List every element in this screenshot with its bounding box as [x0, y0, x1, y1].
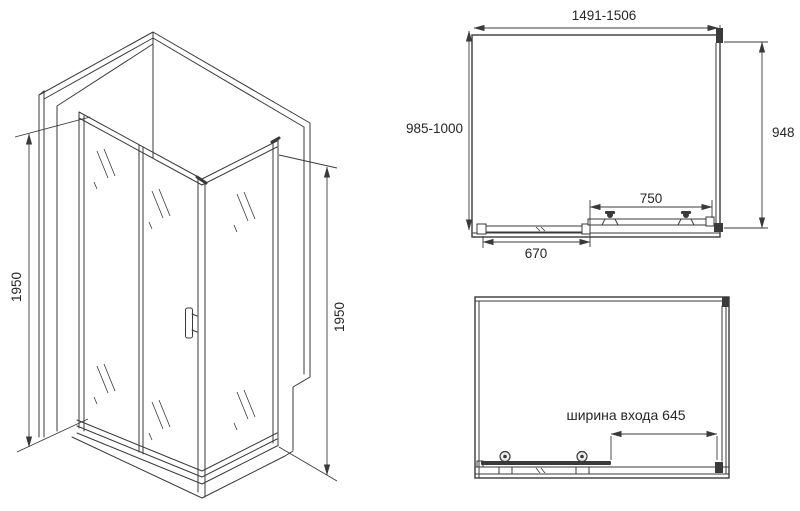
roller-icon	[577, 452, 587, 462]
shower-enclosure-technical-drawing: 1950 1950	[0, 0, 800, 511]
dim-height-right: 1950	[279, 155, 347, 481]
wall-left	[39, 32, 153, 437]
roller-icon	[500, 452, 510, 462]
dim-height-left-label: 1950	[9, 272, 24, 302]
dim-depth-label: 985-1000	[406, 121, 463, 136]
dim-width: 1491-1506	[474, 8, 720, 34]
wall-profile-bottom-right	[714, 223, 723, 232]
sliding-door-bar	[481, 452, 611, 466]
wall-profile-top-right	[716, 28, 723, 43]
front-view: ширина входа 645	[475, 297, 729, 478]
plan-view: 1491-1506 985-1000 948 750 670	[406, 8, 795, 261]
dim-door-width-label: 750	[640, 191, 663, 206]
iso-view: 1950 1950	[9, 32, 347, 498]
dim-fixed-width: 670	[483, 236, 590, 261]
door-track	[588, 211, 714, 226]
plan-inner-lines	[473, 43, 719, 233]
front-frame	[79, 112, 202, 431]
dim-side-depth: 948	[724, 42, 795, 228]
dim-depth: 985-1000	[406, 31, 469, 230]
front-outline	[475, 297, 729, 478]
glass-sparkles	[94, 149, 255, 440]
wall-profile-top	[722, 297, 729, 307]
dim-entrance-width-label: ширина входа 645	[566, 407, 685, 423]
dim-height-right-label: 1950	[332, 302, 347, 332]
front-inner-lines	[475, 301, 729, 478]
corner-post	[198, 178, 205, 497]
dim-side-depth-label: 948	[772, 125, 795, 140]
dim-entrance-width: ширина входа 645	[566, 407, 717, 460]
fixed-panel-bar	[477, 224, 590, 234]
handle-mark	[536, 468, 545, 473]
base-rail	[72, 420, 293, 498]
dim-height-left: 1950	[9, 117, 90, 452]
dim-fixed-width-label: 670	[525, 246, 548, 261]
door-divider	[139, 145, 143, 454]
handle-icon	[186, 308, 198, 338]
dim-width-label: 1491-1506	[572, 8, 637, 23]
wall-right	[153, 32, 310, 450]
